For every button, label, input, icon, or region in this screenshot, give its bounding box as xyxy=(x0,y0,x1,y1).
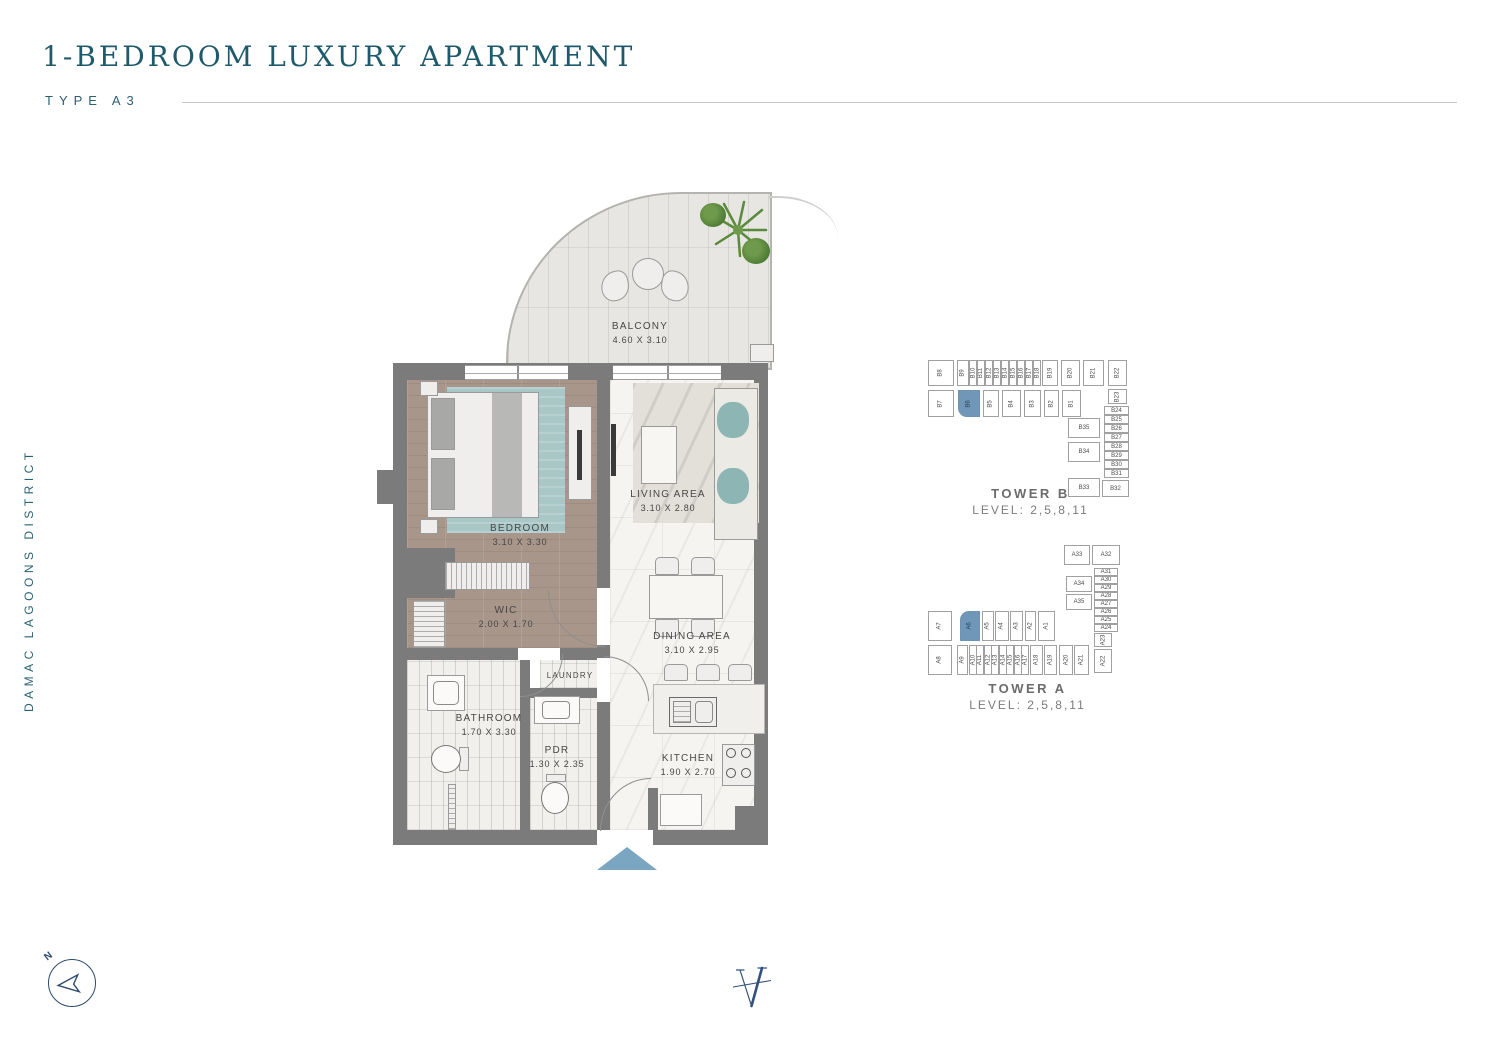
dining-table xyxy=(649,575,723,619)
tower-a-unit-a19: A19 xyxy=(1044,645,1057,675)
tower-b-unit-b1: B1 xyxy=(1062,390,1081,417)
tower-a-unit-a34: A34 xyxy=(1066,576,1092,592)
tower-b-unit-b30: B30 xyxy=(1104,460,1129,469)
tower-a-unit-a9: A9 xyxy=(957,645,968,675)
district-label: DAMAC LAGOONS DISTRICT xyxy=(22,420,46,740)
tower-b-unit-b16: B16 xyxy=(1017,360,1025,386)
tower-b-unit-b4: B4 xyxy=(1002,390,1021,417)
tower-a-unit-a27: A27 xyxy=(1094,600,1118,608)
tower-b-unit-b28: B28 xyxy=(1104,442,1129,451)
tower-a-unit-a15: A15 xyxy=(1006,645,1014,675)
tower-b-unit-b3: B3 xyxy=(1024,390,1041,417)
wardrobe xyxy=(445,562,530,590)
pillow xyxy=(431,458,455,510)
tower-a-unit-a18: A18 xyxy=(1030,645,1043,675)
tower-a-unit-a29: A29 xyxy=(1094,584,1118,592)
sofa-cushion xyxy=(717,402,749,438)
plant-icon xyxy=(742,238,770,264)
tower-a-name: TOWER A xyxy=(925,681,1130,696)
dining-chair xyxy=(691,557,715,575)
tower-a-unit-a3: A3 xyxy=(1010,611,1023,641)
dining-chair xyxy=(655,557,679,575)
tower-a-unit-a5: A5 xyxy=(982,611,994,641)
tower-a-unit-a8: A8 xyxy=(928,645,952,675)
tower-b-unit-b27: B27 xyxy=(1104,433,1129,442)
tower-b-unit-b25: B25 xyxy=(1104,415,1129,424)
tower-a-unit-a28: A28 xyxy=(1094,592,1118,600)
tower-a-unit-a4: A4 xyxy=(995,611,1009,641)
tower-b-unit-b29: B29 xyxy=(1104,451,1129,460)
tower-b-unit-b21: B21 xyxy=(1083,360,1104,386)
tower-a-unit-a35: A35 xyxy=(1066,594,1092,610)
tower-b-unit-b22: B22 xyxy=(1108,360,1127,386)
tower-a-unit-a7: A7 xyxy=(928,611,952,641)
compass-arrow-icon xyxy=(56,967,88,999)
tower-b-unit-b20: B20 xyxy=(1061,360,1080,386)
tower-b-unit-b18: B18 xyxy=(1033,360,1041,386)
coffee-table xyxy=(641,426,677,484)
tower-a-unit-a6: A6 xyxy=(960,611,980,641)
room-label-wic: WIC2.00 X 1.70 xyxy=(436,604,576,630)
toilet-bowl xyxy=(541,782,569,814)
tv-icon xyxy=(577,430,582,480)
bar-chair xyxy=(728,664,752,681)
tower-a-unit-a11: A11 xyxy=(976,645,984,675)
tower-b-unit-b5: B5 xyxy=(983,390,999,417)
tower-b-unit-b7: B7 xyxy=(928,390,954,417)
room-label-laundry: LAUNDRY xyxy=(500,671,640,682)
wall-left-pier xyxy=(377,470,395,504)
tower-b-unit-b11: B11 xyxy=(977,360,985,386)
wall-wic-bottom xyxy=(393,648,610,660)
tower-a-diagram: A1A2A3A4A5A6A7A8A9A10A11A12A13A14A15A16A… xyxy=(928,545,1128,677)
room-label-pdr: PDR1.30 X 2.35 xyxy=(487,744,627,770)
sink-drainer xyxy=(673,701,691,723)
tower-b-unit-b24: B24 xyxy=(1104,406,1129,415)
tower-b-unit-b6: B6 xyxy=(958,390,980,417)
tower-b-unit-b12: B12 xyxy=(985,360,993,386)
brand-logo-icon xyxy=(733,960,771,1016)
toilet-bowl xyxy=(431,745,461,773)
plant-icon xyxy=(700,203,726,227)
page-title: 1-BEDROOM LUXURY APARTMENT xyxy=(42,40,635,73)
entrance-opening xyxy=(597,830,653,845)
tower-a-unit-a13: A13 xyxy=(991,645,999,675)
divider-line xyxy=(182,102,1457,103)
tower-a-unit-a23: A23 xyxy=(1094,633,1112,647)
balcony-table xyxy=(632,258,664,290)
tower-a-unit-a24: A24 xyxy=(1094,624,1118,632)
tv-icon xyxy=(611,424,616,476)
kitchen-cabinet xyxy=(660,794,702,826)
tower-a-unit-a1: A1 xyxy=(1038,611,1055,641)
tower-a-unit-a17: A17 xyxy=(1021,645,1029,675)
type-label: TYPE A3 xyxy=(45,93,140,108)
room-label-kitchen: KITCHEN1.90 X 2.70 xyxy=(618,752,758,778)
tower-b-name: TOWER B xyxy=(928,486,1133,501)
tower-a-unit-a30: A30 xyxy=(1094,576,1118,584)
tower-b-diagram: B1B2B3B4B5B6B7B8B9B10B11B12B13B14B15B16B… xyxy=(928,358,1133,500)
bar-chair xyxy=(696,664,720,681)
tower-b-level: LEVEL: 2,5,8,11 xyxy=(928,503,1133,517)
tower-b-unit-b9: B9 xyxy=(957,360,969,386)
tower-b-unit-b31: B31 xyxy=(1104,469,1129,478)
nightstand xyxy=(420,381,438,396)
room-label-balcony: BALCONY4.60 X 3.10 xyxy=(570,320,710,346)
bar-chair xyxy=(664,664,688,681)
pillow xyxy=(431,398,455,450)
tower-a-unit-a31: A31 xyxy=(1094,568,1118,576)
tower-a-unit-a33: A33 xyxy=(1064,545,1090,565)
nightstand xyxy=(420,519,438,534)
wall-bottom xyxy=(393,830,768,845)
tower-b-unit-b15: B15 xyxy=(1009,360,1017,386)
adjacent-structure-line xyxy=(768,196,838,248)
wall-kitchen-corner xyxy=(735,806,768,845)
wall-left xyxy=(393,363,407,845)
living-window xyxy=(613,365,721,380)
room-label-dining: DINING AREA3.10 X 2.95 xyxy=(622,630,762,656)
room-label-bathroom: BATHROOM1.70 X 3.30 xyxy=(419,712,559,738)
tower-b-unit-b8: B8 xyxy=(928,360,954,386)
tower-b-unit-b23: B23 xyxy=(1108,389,1127,404)
tower-b-unit-b19: B19 xyxy=(1042,360,1058,386)
shower-screen xyxy=(448,784,456,830)
tower-b-unit-b10: B10 xyxy=(969,360,977,386)
entrance-arrow-icon xyxy=(597,847,657,870)
bedroom-window xyxy=(465,365,568,380)
compass-north-label: N xyxy=(42,950,54,963)
tower-a-unit-a21: A21 xyxy=(1074,645,1089,675)
tower-a-unit-a22: A22 xyxy=(1094,649,1112,673)
toilet-tank xyxy=(546,774,566,782)
tower-a-unit-a20: A20 xyxy=(1059,645,1073,675)
tower-b-unit-b35: B35 xyxy=(1068,418,1100,438)
tower-a-unit-a32: A32 xyxy=(1092,545,1120,565)
tower-b-unit-b13: B13 xyxy=(993,360,1001,386)
balcony-column xyxy=(750,344,774,362)
tower-b-unit-b2: B2 xyxy=(1044,390,1059,417)
sink-basin xyxy=(695,701,713,723)
tower-a-unit-a2: A2 xyxy=(1025,611,1036,641)
tower-b-unit-b26: B26 xyxy=(1104,424,1129,433)
tower-a-unit-a26: A26 xyxy=(1094,608,1118,616)
room-label-living: LIVING AREA3.10 X 2.80 xyxy=(598,488,738,514)
room-label-bedroom: BEDROOM3.10 X 3.30 xyxy=(450,522,590,548)
tower-a-level: LEVEL: 2,5,8,11 xyxy=(925,698,1130,712)
brochure-page: 1-BEDROOM LUXURY APARTMENT TYPE A3 DAMAC… xyxy=(0,0,1500,1061)
bed-blanket xyxy=(492,393,522,517)
compass: N xyxy=(44,953,98,1007)
tower-a-unit-a25: A25 xyxy=(1094,616,1118,624)
tower-b-unit-b14: B14 xyxy=(1001,360,1009,386)
tower-b-unit-b34: B34 xyxy=(1068,442,1100,462)
tower-b-unit-b17: B17 xyxy=(1025,360,1033,386)
sink-basin xyxy=(433,681,459,705)
